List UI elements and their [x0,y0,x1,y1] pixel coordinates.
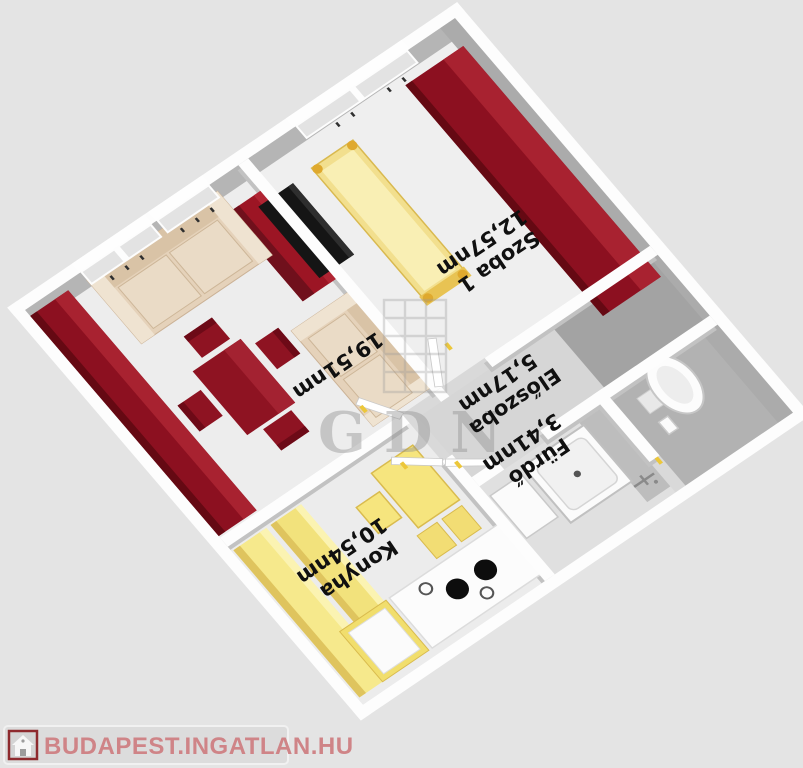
logo-text: BUDAPEST.INGATLAN.HU [44,733,354,760]
house-icon [9,731,37,759]
floor-plan-image: GDN Szoba 1 12,57nm 19,51nm Előszoba 5,1… [0,0,803,768]
